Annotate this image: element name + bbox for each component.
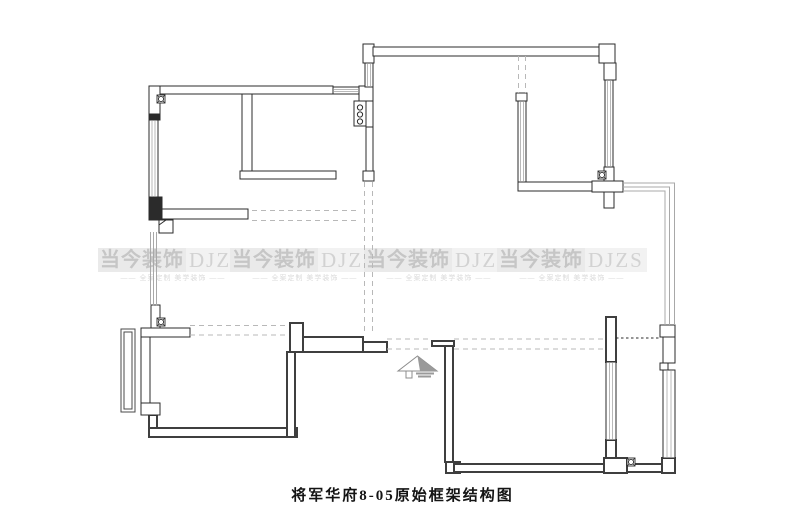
- distribution-box-circle: [357, 119, 362, 124]
- balcony-railing-line: [623, 187, 670, 325]
- flue-symbol: [157, 95, 165, 103]
- wall-segment: [141, 337, 150, 403]
- wall-segment: [366, 127, 373, 171]
- entry-arrow-notch: [406, 371, 412, 378]
- distribution-box-circle: [357, 112, 362, 117]
- window: [518, 101, 526, 182]
- wall-segment: [363, 171, 374, 181]
- flue-symbol: [157, 318, 165, 326]
- wall-segment: [662, 458, 675, 473]
- balcony-railing-line: [623, 183, 675, 325]
- wall-segment: [604, 63, 616, 80]
- flue-symbol: [598, 171, 606, 179]
- window: [663, 370, 675, 458]
- window: [149, 120, 158, 197]
- wall-segment: [290, 323, 303, 352]
- wall-segment: [162, 209, 248, 219]
- bay-window-frame: [124, 332, 132, 409]
- window: [605, 80, 613, 167]
- window: [333, 87, 359, 94]
- wall-segment: [152, 86, 333, 94]
- window: [606, 362, 616, 440]
- wall-segment: [660, 325, 675, 337]
- wall-segment: [599, 44, 615, 63]
- wall-segment: [592, 181, 623, 192]
- column: [149, 114, 160, 120]
- wall-segment: [663, 337, 675, 363]
- balcony-railing-line: [623, 191, 665, 325]
- wall-segment: [363, 342, 387, 352]
- wall-segment: [518, 182, 592, 191]
- wall-segment: [359, 86, 373, 101]
- wall-segment: [303, 337, 363, 352]
- distribution-box-circle: [357, 105, 362, 110]
- bay-window-frame: [121, 329, 135, 412]
- wall-segment: [373, 47, 599, 56]
- wall-segment: [445, 346, 453, 462]
- wall-segment: [287, 352, 295, 437]
- wall-segment: [242, 94, 252, 171]
- floor-plan-drawing: [0, 0, 805, 532]
- wall-segment: [141, 328, 190, 337]
- wall-segment: [240, 171, 336, 179]
- wall-segment: [366, 101, 373, 127]
- flue-symbol: [627, 458, 635, 466]
- drawing-title: 将军华府8-05原始框架结构图: [291, 484, 514, 505]
- wall-segment: [141, 403, 160, 415]
- wall-segment: [604, 458, 627, 473]
- wall-segment: [606, 317, 616, 362]
- wall-segment: [660, 363, 668, 370]
- window: [365, 63, 373, 87]
- wall-segment: [606, 440, 616, 458]
- wall-segment: [159, 220, 173, 233]
- floor-plan-page: 当今装饰DJZS—— 全案定制 美学装饰 ——当今装饰DJZS—— 全案定制 美…: [0, 0, 805, 532]
- column: [149, 197, 162, 220]
- wall-segment: [516, 93, 527, 101]
- wall-segment: [149, 428, 297, 437]
